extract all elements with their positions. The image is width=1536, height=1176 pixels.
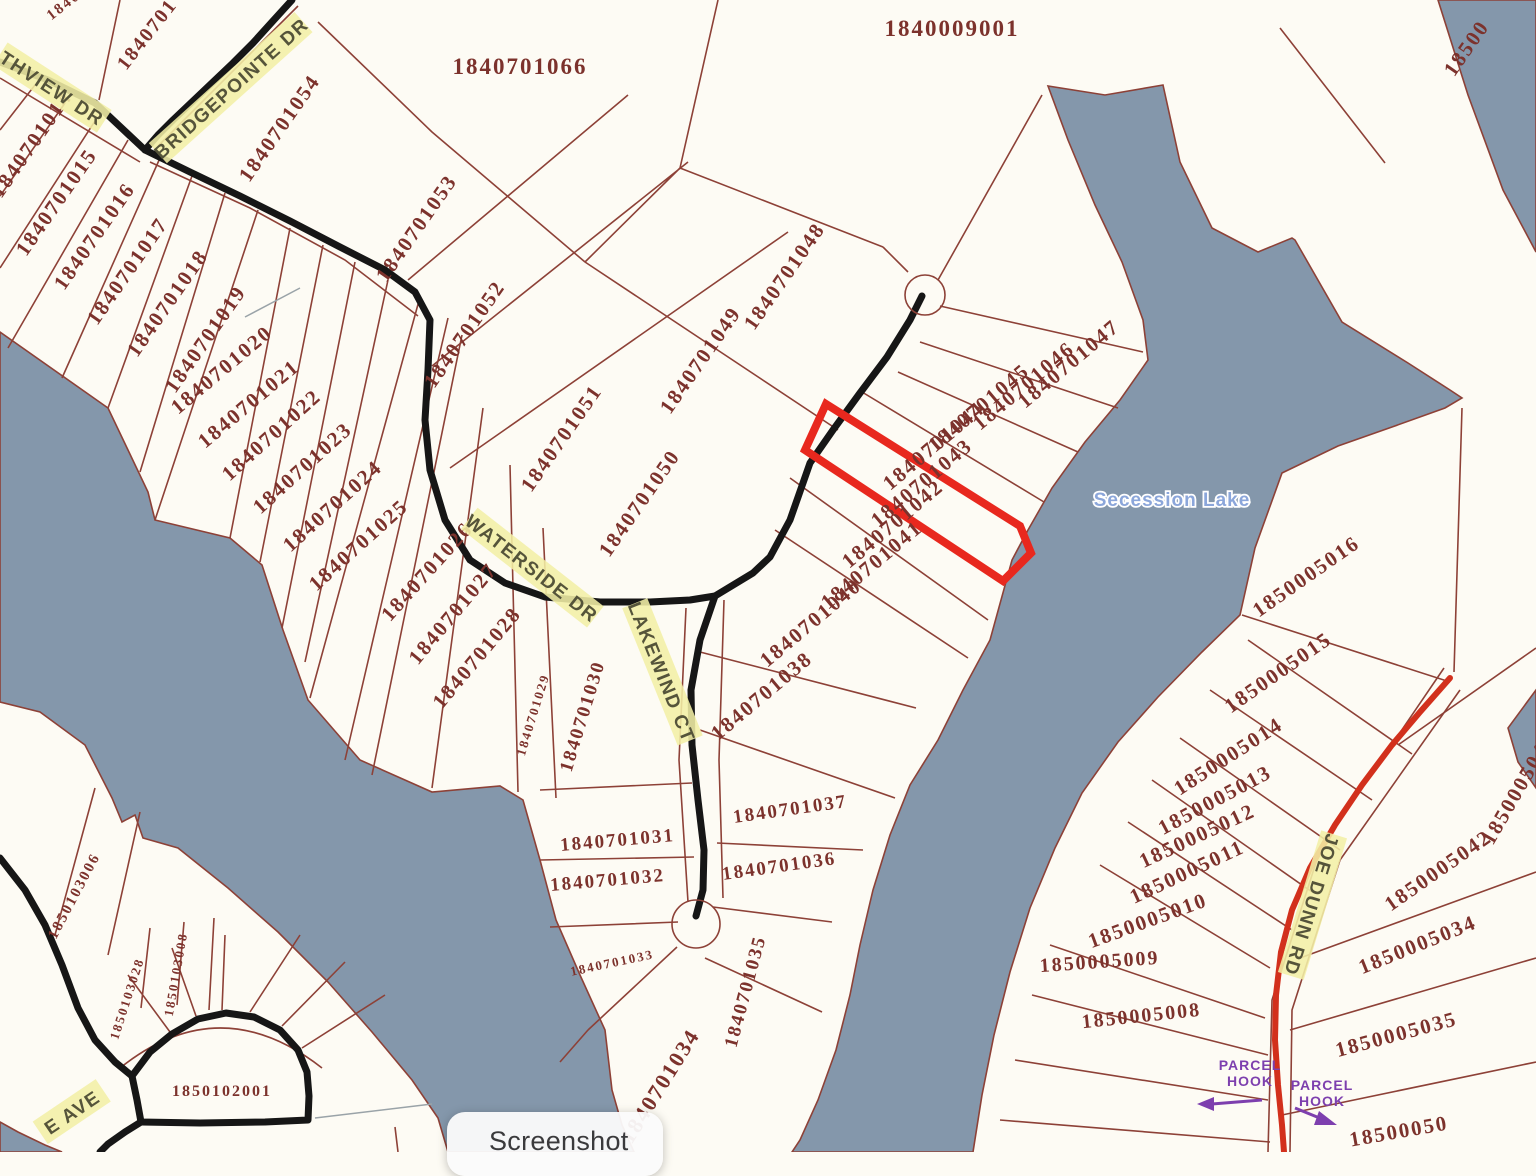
parcel-map-viewport[interactable]: 1840009001184070106618407184070118407010… (0, 0, 1536, 1152)
parcel-label: 1850005016 (1248, 531, 1364, 622)
parcel-label: 1840701066 (453, 54, 588, 79)
road-peninsula (0, 858, 132, 1076)
parcel-label: 1840701032 (549, 865, 665, 896)
road-label-text: LAKEWIND CT (623, 599, 698, 745)
map-canvas[interactable]: 1840009001184070106618407184070118407010… (0, 0, 1536, 1152)
parcel-label: 1850005034 (1355, 910, 1480, 979)
lake-name-label: Secession Lake (1094, 490, 1251, 511)
parcel-label: 1840701036 (721, 848, 838, 885)
parcel-label: 1850103008 (161, 931, 191, 1017)
screenshot-pill-label: Screenshot (489, 1126, 629, 1157)
road-name-label: BRIDGEPOINTE DR (147, 11, 314, 165)
road-loop (132, 1013, 309, 1123)
parcel-label: 1840701037 (732, 791, 849, 828)
parcel-label: 1840701035 (721, 933, 771, 1050)
road-name-label: E AVE (33, 1079, 111, 1144)
road-label-text: BRIDGEPOINTE DR (151, 14, 314, 163)
parcel-label: 18407 (44, 0, 91, 24)
parcel-hook-label: PARCEL (1219, 1057, 1282, 1073)
parcel-label: 1850103028 (106, 956, 147, 1041)
parcel-hook-label: PARCEL (1291, 1077, 1354, 1093)
secession-lake-main-channel (792, 85, 1462, 1152)
parcel-label: 1840701031 (559, 825, 675, 856)
parcel-label: 1850005008 (1081, 999, 1203, 1033)
parcel-hook-label: HOOK (1227, 1073, 1273, 1089)
parcel-label: 1850005009 (1039, 947, 1160, 977)
parcel-label: 1840701053 (371, 170, 462, 286)
screenshot-thumbnail-button[interactable]: Screenshot (447, 1112, 663, 1176)
road-lakewind (691, 596, 715, 916)
parcel-label: 1840009001 (885, 16, 1020, 41)
road-name-label: JOE DUNN RD (1278, 830, 1347, 979)
parcel-hook-label: HOOK (1299, 1093, 1345, 1109)
parcel-label: 1840701051 (516, 380, 607, 496)
lake-name-text: Secession Lake (1094, 490, 1251, 511)
parcel-label: 18500050 (1347, 1111, 1450, 1152)
parcel-label: 1840701029 (513, 672, 552, 758)
parcel-label: 1840701030 (556, 658, 610, 774)
parcel-label: 1840701050 (594, 445, 685, 561)
parcel-label: 1840701033 (569, 946, 655, 978)
road-loop-exit (100, 1122, 141, 1152)
parcel-label: 1840701 (113, 0, 182, 74)
parcel-label: 1850005015 (1220, 627, 1336, 718)
parcel-label: 1850102001 (172, 1083, 272, 1100)
parcel-label: 1850005035 (1333, 1006, 1460, 1062)
